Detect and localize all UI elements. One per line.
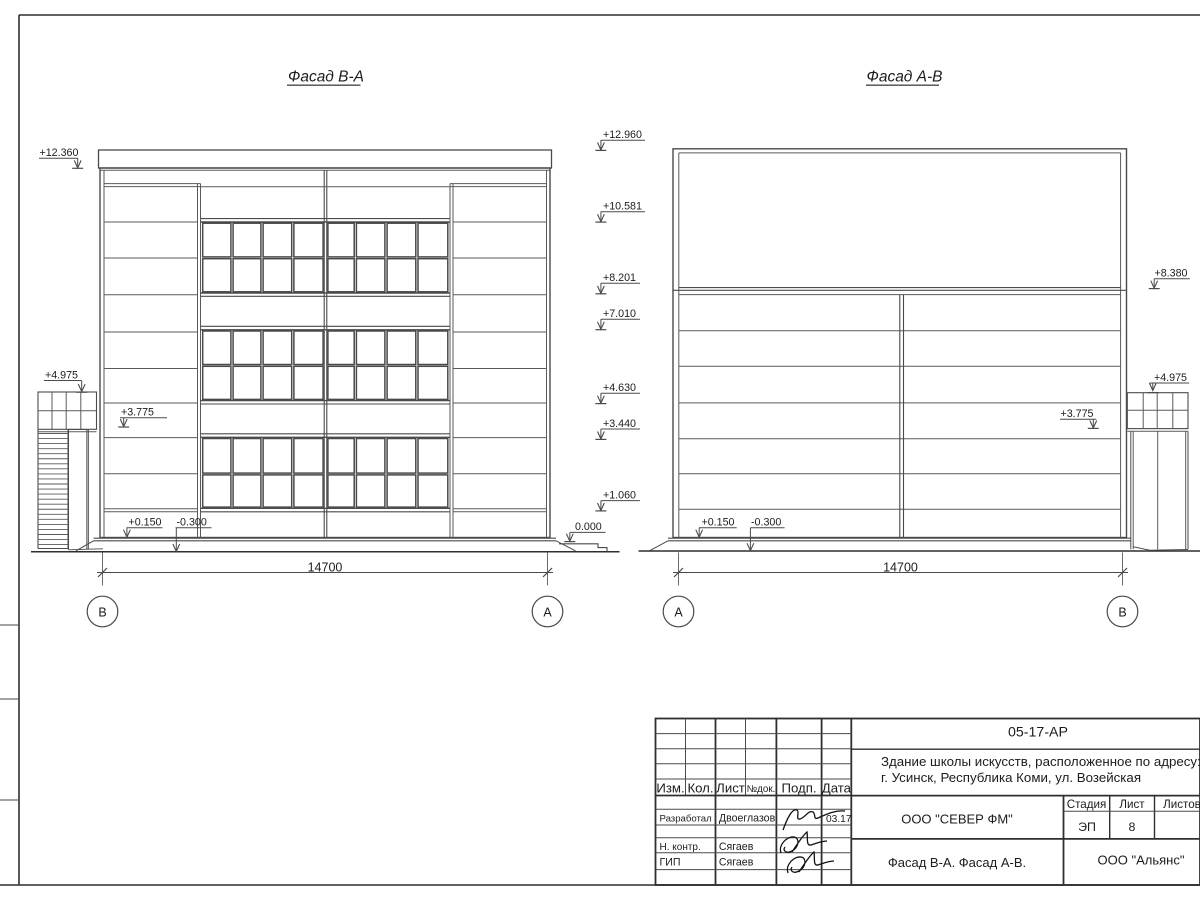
svg-text:Лист: Лист: [1119, 798, 1145, 811]
svg-text:+12.360: +12.360: [40, 147, 79, 159]
svg-text:В: В: [98, 606, 106, 620]
svg-text:Н. контр.: Н. контр.: [660, 842, 701, 853]
svg-text:+10.581: +10.581: [603, 201, 642, 213]
svg-text:14700: 14700: [883, 560, 918, 574]
svg-text:Сягаев: Сягаев: [719, 841, 754, 853]
svg-text:-0.300: -0.300: [751, 517, 781, 529]
svg-text:+3.775: +3.775: [1061, 408, 1094, 420]
svg-text:ООО "Альянс": ООО "Альянс": [1098, 853, 1185, 868]
svg-text:Подп.: Подп.: [781, 781, 816, 796]
svg-text:Дата: Дата: [822, 781, 852, 796]
svg-text:А: А: [543, 606, 552, 620]
svg-text:+0.150: +0.150: [129, 517, 162, 529]
svg-text:0.000: 0.000: [575, 521, 602, 533]
svg-text:+8.201: +8.201: [603, 272, 636, 284]
svg-text:Здание школы искусств, располо: Здание школы искусств, расположенное по …: [881, 754, 1200, 769]
svg-text:+7.010: +7.010: [603, 308, 636, 320]
svg-text:Фасад А-В: Фасад А-В: [867, 69, 943, 86]
svg-text:Сягаев: Сягаев: [719, 857, 754, 869]
svg-text:Кол.: Кол.: [687, 781, 713, 796]
svg-text:Лист: Лист: [716, 781, 745, 796]
svg-text:14700: 14700: [308, 560, 343, 574]
svg-text:Фасад В-А: Фасад В-А: [288, 69, 364, 86]
svg-text:+4.630: +4.630: [603, 382, 636, 394]
svg-text:+3.440: +3.440: [603, 418, 636, 430]
svg-text:+12.960: +12.960: [603, 129, 642, 141]
svg-text:Стадия: Стадия: [1067, 798, 1107, 811]
svg-text:№док.: №док.: [747, 784, 776, 795]
svg-text:Разработал: Разработал: [660, 813, 712, 824]
svg-text:Листов: Листов: [1163, 798, 1200, 811]
svg-text:ООО "СЕВЕР ФМ": ООО "СЕВЕР ФМ": [901, 812, 1013, 827]
svg-text:ЭП: ЭП: [1078, 820, 1096, 834]
svg-text:+4.975: +4.975: [45, 369, 78, 381]
svg-text:ГИП: ГИП: [660, 857, 681, 869]
svg-text:Двоеглазов: Двоеглазов: [719, 812, 776, 824]
svg-text:Фасад В-А. Фасад А-В.: Фасад В-А. Фасад А-В.: [888, 855, 1026, 870]
svg-text:8: 8: [1129, 820, 1136, 834]
svg-text:г. Усинск, Республика Коми, ул: г. Усинск, Республика Коми, ул. Возейска…: [881, 770, 1141, 785]
svg-text:Изм.: Изм.: [656, 781, 684, 796]
svg-text:+4.975: +4.975: [1154, 372, 1187, 384]
svg-text:05-17-АР: 05-17-АР: [1008, 724, 1068, 740]
svg-text:+0.150: +0.150: [702, 517, 735, 529]
svg-text:+1.060: +1.060: [603, 489, 636, 501]
svg-text:А: А: [674, 606, 683, 620]
svg-text:В: В: [1118, 606, 1126, 620]
svg-text:+8.380: +8.380: [1155, 268, 1188, 280]
svg-text:-0.300: -0.300: [177, 517, 207, 529]
svg-text:03.17: 03.17: [826, 814, 852, 825]
svg-text:+3.775: +3.775: [121, 407, 154, 419]
